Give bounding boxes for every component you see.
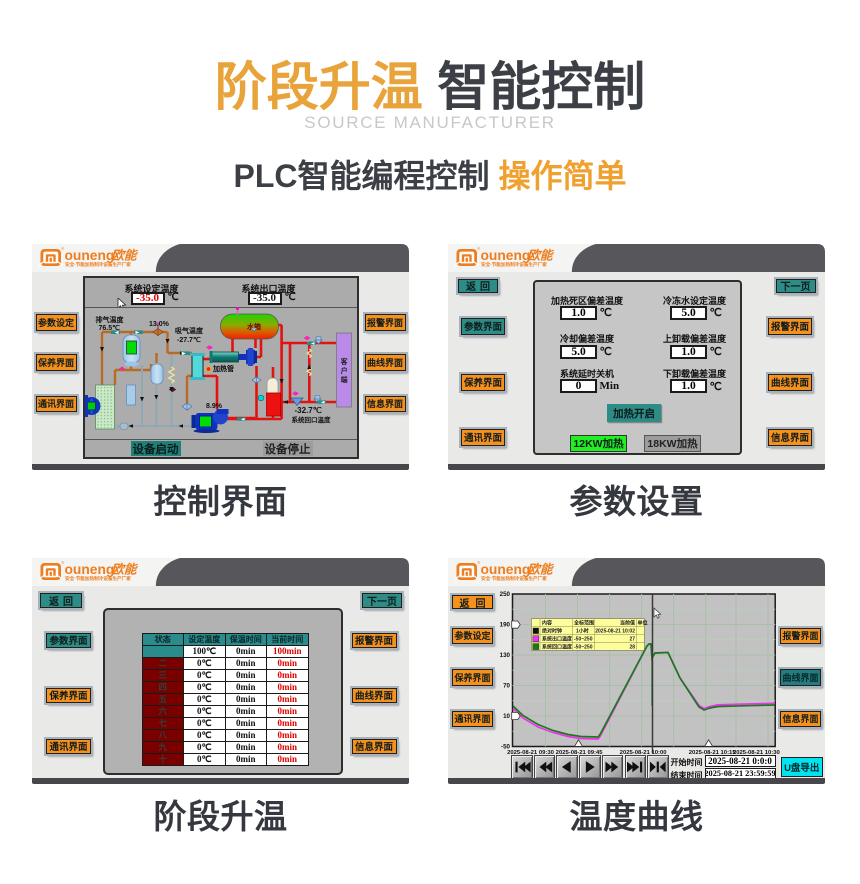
svg-text:13.0%: 13.0% [149, 321, 170, 328]
svg-text:ouneng: ouneng [481, 248, 531, 263]
svg-text:ouneng: ouneng [65, 562, 115, 577]
svg-text:250: 250 [500, 591, 511, 598]
svg-text:安全·节能加热制冷设备生产厂家: 安全·节能加热制冷设备生产厂家 [65, 261, 131, 268]
svg-text:1小时: 1小时 [576, 628, 589, 635]
svg-text:系统回口温度: 系统回口温度 [291, 415, 331, 424]
svg-text:安全·节能加热制冷设备生产厂家: 安全·节能加热制冷设备生产厂家 [65, 575, 131, 582]
svg-text:系统回口温度: 系统回口温度 [542, 643, 573, 650]
svg-text:ouneng: ouneng [481, 562, 531, 577]
svg-text:端: 端 [340, 375, 347, 384]
svg-text:内容: 内容 [542, 620, 552, 627]
svg-text:欧能: 欧能 [112, 249, 139, 263]
svg-text:欧能: 欧能 [528, 249, 555, 263]
svg-text:-32.7℃: -32.7℃ [294, 406, 321, 415]
svg-text:客: 客 [339, 357, 347, 366]
svg-text:10: 10 [503, 713, 510, 720]
svg-text:欧能: 欧能 [112, 563, 139, 577]
svg-text:加热管: 加热管 [212, 364, 234, 373]
svg-text:-50~250: -50~250 [574, 636, 593, 642]
svg-text:2025-08-21 10:02: 2025-08-21 10:02 [595, 629, 635, 635]
svg-text:-27.7℃: -27.7℃ [177, 336, 201, 344]
svg-text:欧能: 欧能 [528, 563, 555, 577]
svg-text:安全·节能加热制冷设备生产厂家: 安全·节能加热制冷设备生产厂家 [481, 575, 547, 582]
svg-text:系统出口温度: 系统出口温度 [542, 635, 573, 642]
svg-text:ouneng: ouneng [65, 248, 115, 263]
svg-text:70: 70 [503, 683, 510, 690]
svg-text:190: 190 [500, 622, 511, 629]
svg-text:27: 27 [629, 636, 635, 642]
svg-text:安全·节能加热制冷设备生产厂家: 安全·节能加热制冷设备生产厂家 [481, 261, 547, 268]
svg-text:当前值: 当前值 [620, 620, 635, 627]
svg-text:全标范围: 全标范围 [573, 620, 594, 627]
svg-text:130: 130 [500, 652, 511, 659]
svg-text:户: 户 [340, 366, 347, 375]
svg-text:76.5℃: 76.5℃ [98, 324, 120, 332]
svg-text:8.9%: 8.9% [206, 403, 223, 410]
svg-text:绝对时钟: 绝对时钟 [542, 628, 562, 635]
svg-text:单位: 单位 [638, 620, 648, 627]
svg-text:吸气温度: 吸气温度 [175, 326, 204, 335]
svg-text:排气温度: 排气温度 [95, 315, 124, 324]
svg-text:-50~250: -50~250 [574, 644, 593, 650]
svg-text:28: 28 [629, 644, 635, 650]
